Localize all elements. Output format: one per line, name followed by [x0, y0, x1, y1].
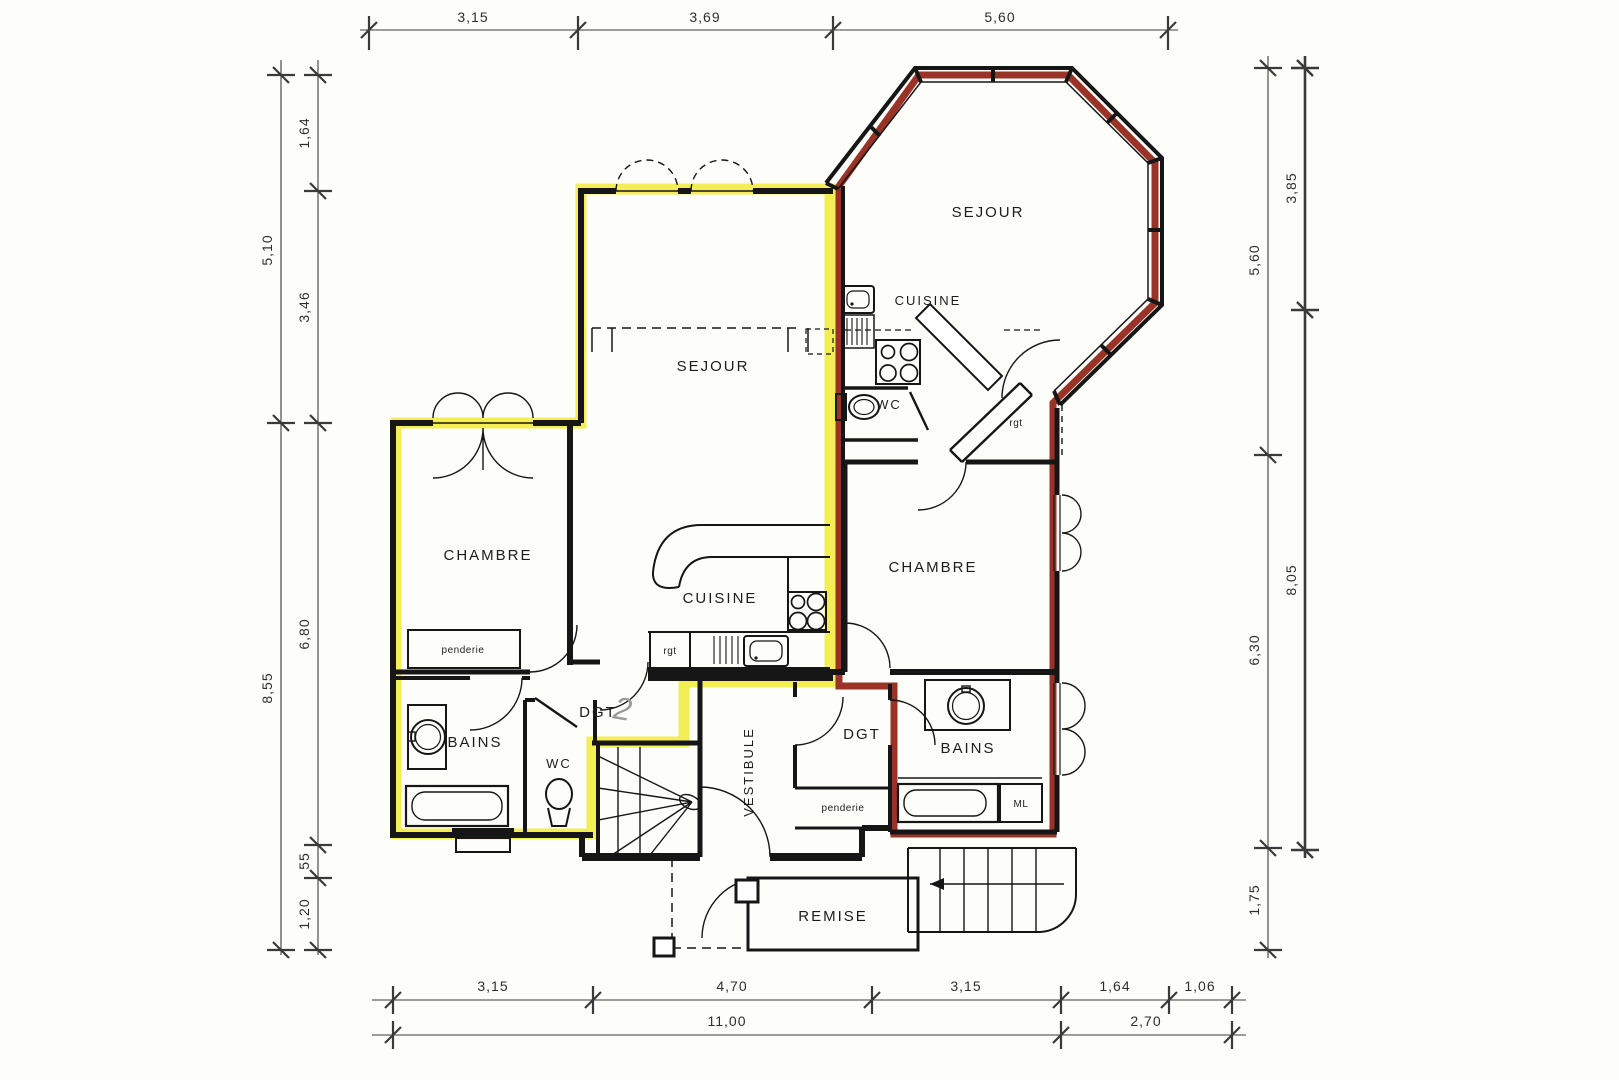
room-label-dgt-right: DGT	[843, 726, 881, 743]
burner-top-4	[901, 365, 918, 382]
ext-stairs-arrowhead	[930, 878, 944, 890]
wall-wc-top	[843, 388, 918, 440]
porch-post-1	[654, 938, 674, 956]
dim-bottom1-2: 4,70	[716, 978, 747, 994]
dim-left-inner-2: 3,46	[296, 291, 312, 322]
shutter-arcs-chambre-right	[1062, 495, 1081, 571]
sink-top-drain-dot	[850, 302, 853, 305]
dimension-labels: 3,15 3,69 5,60 5,10 8,55 1,64 3,46 6,80 …	[259, 9, 1299, 1029]
room-label-chambre-right: CHAMBRE	[888, 559, 977, 576]
burner-top-1	[882, 346, 895, 359]
shutter-arcs-bains-right	[1062, 683, 1085, 775]
room-label-wc-left: WC	[546, 756, 572, 771]
french-door-arcs-outside	[433, 393, 533, 418]
ext-stairs-treads	[940, 848, 1036, 932]
wall-chambre-left-right	[570, 420, 581, 665]
burner-4	[808, 613, 825, 630]
dim-bottom1-5: 1,06	[1184, 978, 1215, 994]
sink-drain-dot	[754, 656, 757, 659]
floor-plan-drawing: 3,15 3,69 5,60 5,10 8,55 1,64 3,46 6,80 …	[0, 0, 1619, 1080]
dim-left-inner-4: 55	[296, 852, 312, 870]
burner-2	[808, 594, 825, 611]
red-unit-outline	[839, 75, 1155, 834]
room-label-remise: REMISE	[798, 908, 868, 925]
dim-left-outer-1: 5,10	[259, 234, 275, 265]
room-label-sejour-octagon: SEJOUR	[952, 204, 1025, 221]
dim-top-2: 3,69	[689, 9, 720, 25]
room-label-bains-right: BAINS	[940, 740, 995, 757]
dim-left-outer-2: 8,55	[259, 672, 275, 703]
burner-3	[790, 613, 807, 630]
dim-right-outer-1: 3,85	[1283, 172, 1299, 203]
washbasin-bains-right	[948, 688, 984, 724]
dim-right-inner-1: 5,60	[1246, 244, 1262, 275]
washbasin-bains-right-inner	[953, 693, 980, 720]
counter-curve-cuisine-main	[653, 525, 830, 588]
toilet-wc-left	[546, 779, 572, 809]
dim-bottom2-1: 11,00	[708, 1013, 747, 1029]
drainer-cuisine-top	[847, 318, 867, 345]
burner-top-3	[880, 365, 896, 381]
beam-stub-right	[788, 328, 808, 352]
dim-left-inner-3: 6,80	[296, 618, 312, 649]
burner-top-2	[901, 344, 918, 361]
window-sill-bains-left	[452, 828, 514, 837]
bathtub-bains-right-inner	[904, 790, 986, 816]
door-arc-chambre-right-top	[918, 462, 966, 510]
dim-right-inner-3: 1,75	[1246, 884, 1262, 915]
dim-left-inner-1: 1,64	[296, 117, 312, 148]
dim-bottom1-4: 1,64	[1099, 978, 1130, 994]
label-washing-machine: ML	[1014, 799, 1029, 810]
wall-wc-left-partition	[525, 700, 535, 835]
toilet-wc-top-inner	[854, 400, 874, 415]
wall-front-jog	[582, 828, 890, 857]
ext-stairs-rail-curve	[1040, 894, 1076, 932]
ext-stairs-outline	[908, 848, 1076, 932]
room-label-vestibule: VESTIBULE	[741, 727, 756, 817]
french-door-arcs-inside	[433, 428, 533, 478]
washbasin-bains-left-inner	[416, 725, 441, 750]
beam-stub-left	[592, 328, 612, 352]
dim-right-outer-2: 8,05	[1283, 564, 1299, 595]
room-label-cuisine-top: CUISINE	[895, 293, 962, 308]
floor-plan-page: 3,15 3,69 5,60 5,10 8,55 1,64 3,46 6,80 …	[0, 0, 1619, 1080]
bathtub-bains-left-inner	[412, 792, 502, 820]
door-arc-bains-left	[470, 678, 522, 730]
sink-basin-cuisine-top	[847, 291, 869, 308]
dim-left-inner-5: 1,20	[296, 898, 312, 929]
room-label-penderie-left: penderie	[442, 645, 485, 656]
door-arc-octagon-hall	[1002, 340, 1060, 398]
dim-bottom1-1: 3,15	[477, 978, 508, 994]
stove-box-cuisine-top	[876, 340, 920, 384]
door-leaf-wc-left	[535, 698, 577, 727]
stair-treads	[598, 747, 692, 855]
room-label-penderie-right: penderie	[822, 803, 865, 814]
dim-bottom1-3: 3,15	[950, 978, 981, 994]
dim-right-inner-2: 6,30	[1246, 634, 1262, 665]
room-label-chambre-left: CHAMBRE	[443, 547, 532, 564]
door-arc-entry	[700, 787, 770, 857]
pencil-note-2: 2	[610, 689, 635, 728]
porch-post-2	[736, 880, 758, 902]
room-label-sejour-main: SEJOUR	[677, 358, 750, 375]
door-arc-chambre-right-bottom	[845, 623, 890, 668]
walls	[390, 68, 1162, 956]
door-leaf-wc-top	[910, 392, 928, 430]
toilet-base-wc-left	[548, 808, 570, 826]
room-label-wc-top: WC	[876, 397, 902, 412]
door-arc-dgt-right	[795, 697, 843, 745]
drainer-cuisine-main	[714, 636, 738, 664]
room-label-rgt-top: rgt	[1009, 418, 1022, 429]
counter-diagonal-cuisine-top	[916, 304, 1002, 390]
dim-top-3: 5,60	[984, 9, 1015, 25]
window-box-bains-left	[456, 838, 510, 852]
room-label-rgt-main: rgt	[663, 646, 676, 657]
room-label-cuisine-main: CUISINE	[683, 590, 758, 607]
room-label-bains-left: BAINS	[447, 734, 502, 751]
dim-top-1: 3,15	[457, 9, 488, 25]
dim-bottom2-2: 2,70	[1130, 1013, 1161, 1029]
room-labels: SEJOUR CUISINE WC rgt SEJOUR CHAMBRE pen…	[442, 204, 1029, 925]
burner-1	[792, 596, 805, 609]
